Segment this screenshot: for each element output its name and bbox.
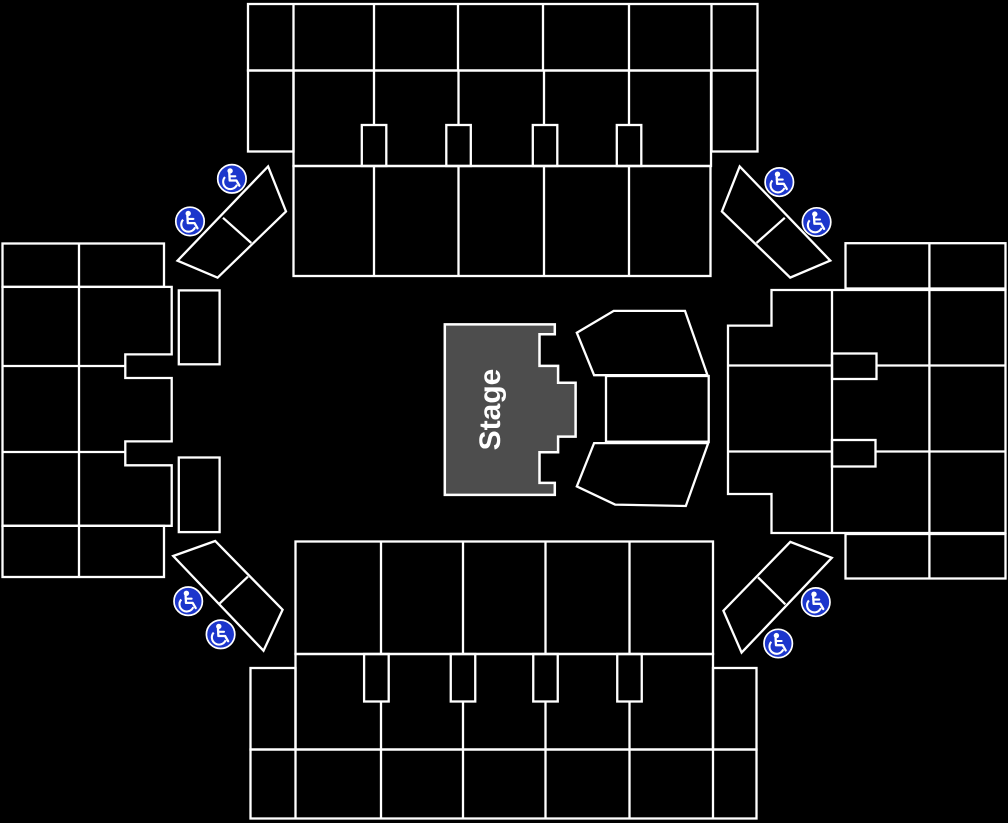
svg-text:Stage: Stage	[474, 369, 507, 451]
